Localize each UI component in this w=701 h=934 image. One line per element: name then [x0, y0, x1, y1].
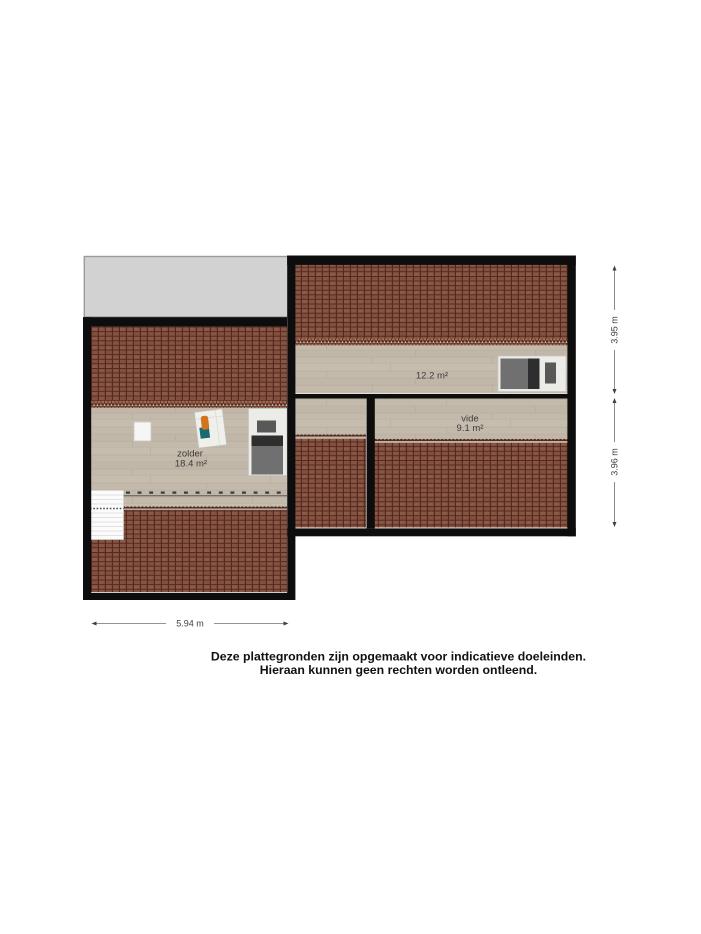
svg-text:9.1 m²: 9.1 m²: [457, 423, 484, 434]
svg-text:12.2 m²: 12.2 m²: [416, 371, 448, 382]
svg-text:5.94 m: 5.94 m: [176, 619, 204, 629]
svg-text:3.96 m: 3.96 m: [610, 448, 620, 476]
svg-text:Hieraan kunnen geen rechten wo: Hieraan kunnen geen rechten worden ontle…: [260, 663, 537, 677]
svg-text:3.95 m: 3.95 m: [610, 316, 620, 344]
svg-text:18.4 m²: 18.4 m²: [175, 459, 207, 470]
svg-text:Deze plattegronden zijn opgema: Deze plattegronden zijn opgemaakt voor i…: [211, 650, 586, 664]
